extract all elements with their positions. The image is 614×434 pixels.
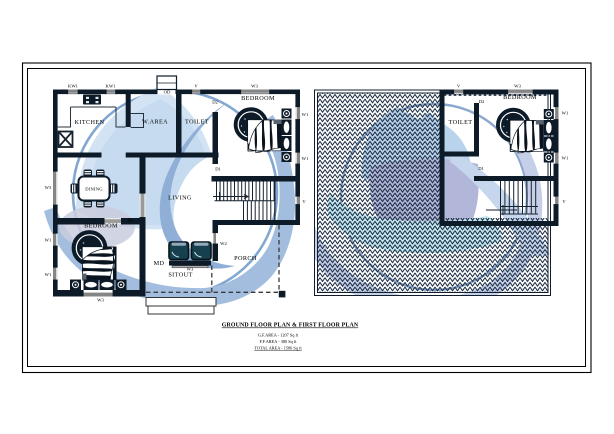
svg-text:W3: W3 [45, 185, 52, 190]
svg-text:W3: W3 [514, 84, 521, 89]
svg-text:W1: W1 [562, 111, 569, 116]
svg-text:W1: W1 [45, 237, 52, 242]
svg-text:D2: D2 [479, 99, 485, 104]
svg-text:F.F.AREA - 380 Sq ft: F.F.AREA - 380 Sq ft [259, 339, 297, 344]
svg-text:KW1: KW1 [106, 84, 117, 89]
svg-text:KITCHEN: KITCHEN [75, 119, 105, 126]
svg-text:KW1: KW1 [68, 84, 79, 89]
svg-text:D1: D1 [128, 217, 134, 222]
svg-text:OD: OD [164, 89, 171, 94]
svg-text:G.F.AREA - 1207 Sq ft: G.F.AREA - 1207 Sq ft [258, 333, 299, 338]
svg-text:D1: D1 [478, 166, 484, 171]
svg-text:BEDROOM: BEDROOM [503, 94, 537, 101]
svg-text:W3: W3 [187, 267, 194, 272]
svg-text:W1: W1 [45, 272, 52, 277]
svg-text:D2: D2 [212, 99, 218, 104]
svg-text:TOILET: TOILET [185, 119, 209, 126]
svg-text:W1: W1 [302, 112, 309, 117]
svg-text:W2: W2 [220, 241, 227, 246]
svg-text:BEDROOM: BEDROOM [84, 222, 118, 229]
svg-text:GROUND FLOOR PLAN & FIRST FLOO: GROUND FLOOR PLAN & FIRST FLOOR PLAN [222, 323, 359, 329]
svg-text:TOTAL AREA - 1586 Sq ft: TOTAL AREA - 1586 Sq ft [254, 346, 302, 351]
svg-text:LIVING: LIVING [168, 194, 192, 201]
svg-text:PORCH: PORCH [234, 255, 257, 262]
svg-text:W1: W1 [562, 156, 569, 161]
svg-text:W3: W3 [251, 84, 258, 89]
svg-text:TOILET: TOILET [449, 119, 473, 126]
svg-text:W3: W3 [97, 298, 104, 303]
svg-text:SITOUT: SITOUT [168, 271, 192, 278]
svg-text:BEDROOM: BEDROOM [241, 95, 275, 102]
svg-text:MD: MD [154, 260, 165, 267]
svg-text:DINING: DINING [85, 186, 103, 191]
svg-text:W.AREA: W.AREA [142, 119, 168, 126]
svg-text:W1: W1 [302, 156, 309, 161]
svg-text:D1: D1 [215, 166, 221, 171]
